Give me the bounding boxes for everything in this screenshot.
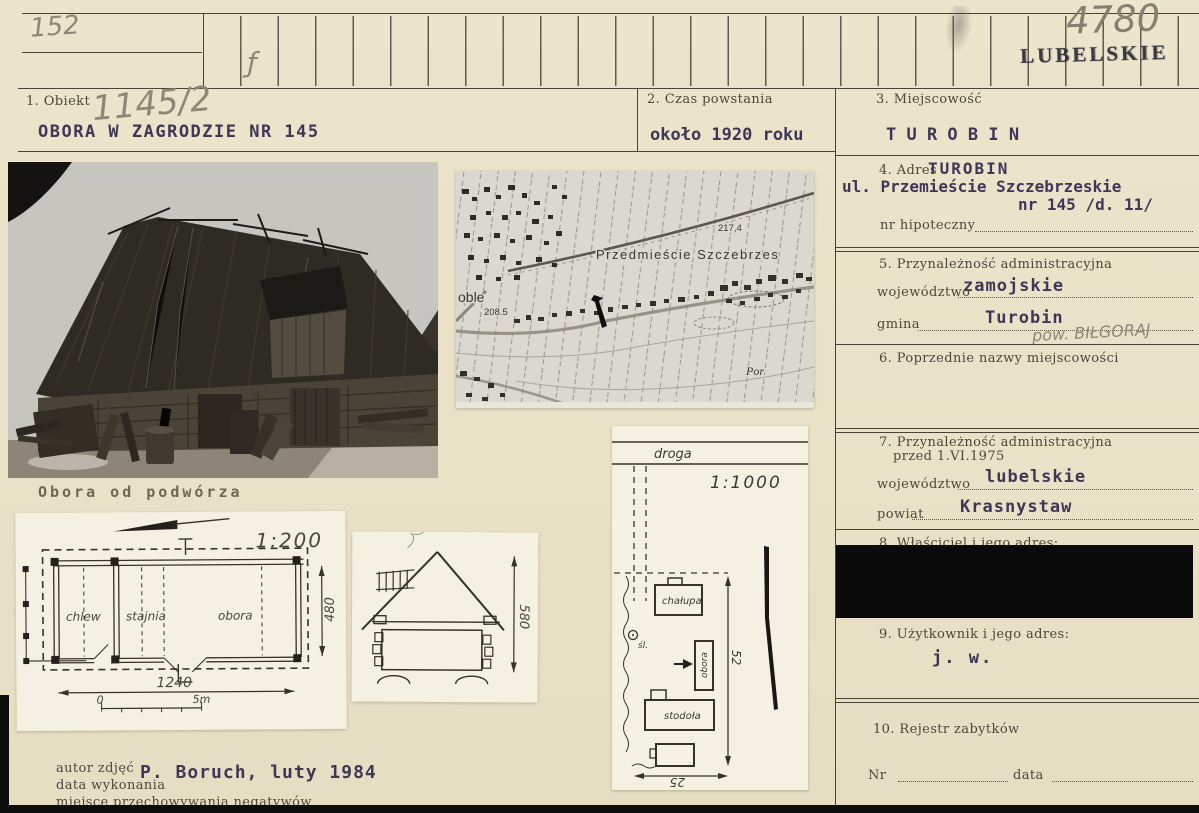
barn-pointer-arrow	[674, 659, 693, 669]
site-north-needle	[764, 546, 778, 710]
map-settlement-label: Przedmieście Szczebrzes	[596, 247, 779, 262]
roof-right-slope	[437, 552, 504, 630]
header-top-rule	[22, 13, 1199, 14]
field10-nr-dots	[898, 781, 1008, 782]
house-label: chałupa	[662, 596, 702, 607]
voivodeship-stamp: LUBELSKIE	[1020, 40, 1169, 69]
eave-block-left	[374, 616, 386, 624]
field4-hypo-dots	[975, 231, 1193, 232]
field7-county-dots	[912, 519, 1193, 520]
north-arrow-tail	[175, 519, 229, 524]
site-scale-label: 1:1000	[710, 473, 782, 493]
field1-value: OBORA W ZAGRODZIE NR 145	[38, 122, 320, 142]
rule-under-field6	[835, 428, 1199, 433]
rule-under-field4	[835, 247, 1199, 252]
redaction-bar	[836, 545, 1193, 618]
field5-label: 5. Przynależność administracyjna	[879, 257, 1112, 272]
rule-under-field5	[835, 344, 1199, 345]
scan-edge-bottom	[0, 805, 1199, 813]
field9-label: 9. Użytkownik i jego adres:	[879, 627, 1069, 642]
field5-voivodeship-label: województwo	[877, 285, 970, 300]
footer-author-value: P. Boruch, luty 1984	[140, 762, 377, 783]
field7-voivodeship-value: lubelskie	[985, 467, 1086, 487]
plan-scale-label: 1:200	[255, 528, 323, 552]
field10-date-label: data	[1013, 768, 1044, 783]
outbuilding-outline	[656, 744, 694, 766]
site-dim-v: 52	[729, 650, 743, 665]
road-label: droga	[654, 447, 692, 462]
well-dot	[632, 634, 634, 636]
field10-nr-label: Nr	[868, 768, 886, 783]
field7-county-value: Krasnystaw	[960, 497, 1072, 517]
section-sheet: 580	[352, 532, 539, 703]
foundation-right	[456, 676, 488, 684]
field4-street: ul. Przemieście Szczebrzeskie	[842, 177, 1121, 196]
field3-value: T U R O B I N	[886, 125, 1019, 145]
eave-line	[372, 622, 500, 623]
map-elevation-2: 208.5	[484, 307, 508, 318]
boundary-squiggle	[624, 576, 629, 752]
field5-commune-label: gmina	[877, 317, 920, 332]
rule-under-field9	[835, 698, 1199, 703]
plan-bar-zero: 0	[97, 694, 104, 707]
record-card: 152 ƒ 4780 LUBELSKIE 1. Obiekt 1145/2 OB…	[0, 0, 1199, 813]
section-height-dim: 580	[516, 604, 531, 629]
field5-voivodeship-dots	[958, 297, 1193, 298]
footer-line1: autor zdjęć	[56, 761, 134, 776]
shed-label: stodoła	[664, 711, 701, 722]
pencil-number-right: 4780	[1065, 0, 1161, 43]
field2-value: około 1920 roku	[650, 125, 804, 145]
barn-label: obora	[700, 652, 710, 678]
field1-2-divider	[637, 88, 638, 151]
row1-bottom-rule-left	[18, 151, 835, 152]
field4-town: TUROBIN	[928, 159, 1009, 178]
photo-caption: Obora od podwórza	[38, 483, 243, 501]
shed-annex	[651, 690, 666, 700]
foundation-left	[378, 676, 410, 684]
plan-room-3: obora	[218, 609, 253, 623]
plan-height-dim: 480	[323, 597, 338, 622]
north-arrow	[113, 520, 177, 531]
plan-bar-five: 5m	[193, 693, 211, 706]
log-ends	[373, 633, 493, 669]
floor-plan-sheet: 1:200 chlew stajnia obora 1240 480 0 5m	[15, 511, 347, 731]
field6-label: 6. Poprzednie nazwy miejscowości	[879, 351, 1119, 366]
field9-value: j. w.	[932, 648, 993, 668]
map-print-margin	[456, 402, 814, 408]
log-wall	[382, 630, 482, 671]
field1-label: 1. Obiekt	[26, 94, 90, 109]
row1-bottom-rule-right	[835, 155, 1199, 156]
site-plan-sheet: droga 1:1000 chałupa obora stodoła śl. 5…	[612, 426, 808, 790]
field4-number: nr 145 /d. 11/	[1018, 195, 1153, 214]
plan-room-1: chlew	[66, 610, 101, 624]
field7-voivodeship-dots	[958, 489, 1193, 490]
plan-room-2: stajnia	[126, 609, 166, 623]
well-label: śl.	[638, 640, 648, 651]
map-river-label: Por	[745, 364, 764, 378]
rule-under-field7	[835, 529, 1199, 530]
field10-date-dots	[1052, 781, 1193, 782]
pencil-number-left: 152	[29, 10, 81, 43]
bottom-squiggle	[632, 764, 656, 768]
barn-photograph	[8, 162, 438, 478]
house-chimney	[668, 578, 682, 585]
field7-voivodeship-label: województwo	[877, 477, 970, 492]
location-map: Przedmieście Szczebrzes 217,4 208.5 oble…	[456, 171, 814, 408]
section-mark-top	[178, 539, 192, 555]
field7-label: 7. Przynależność administracyjna	[879, 435, 1112, 450]
map-elevation-1: 217,4	[718, 223, 742, 234]
scan-edge-left	[0, 695, 9, 813]
pencil-check-mark: ƒ	[247, 46, 257, 79]
site-dim-h: 25	[670, 775, 685, 789]
header-left-rule	[22, 52, 202, 53]
roof-left-slope	[362, 552, 437, 630]
header-left-divider	[203, 13, 204, 88]
smoke-squiggle	[407, 532, 423, 548]
field3-label: 3. Miejscowość	[876, 92, 982, 107]
field7-label2: przed 1.VI.1975	[893, 449, 1005, 464]
field10-label: 10. Rejestr zabytków	[873, 722, 1020, 737]
field4-hypo-label: nr hipoteczny	[880, 218, 975, 233]
field5-voivodeship-value: zamojskie	[963, 276, 1064, 296]
field2-label: 2. Czas powstania	[647, 92, 773, 107]
plan-width-dim: 1240	[156, 675, 192, 691]
map-partial-name: oble	[458, 289, 485, 305]
